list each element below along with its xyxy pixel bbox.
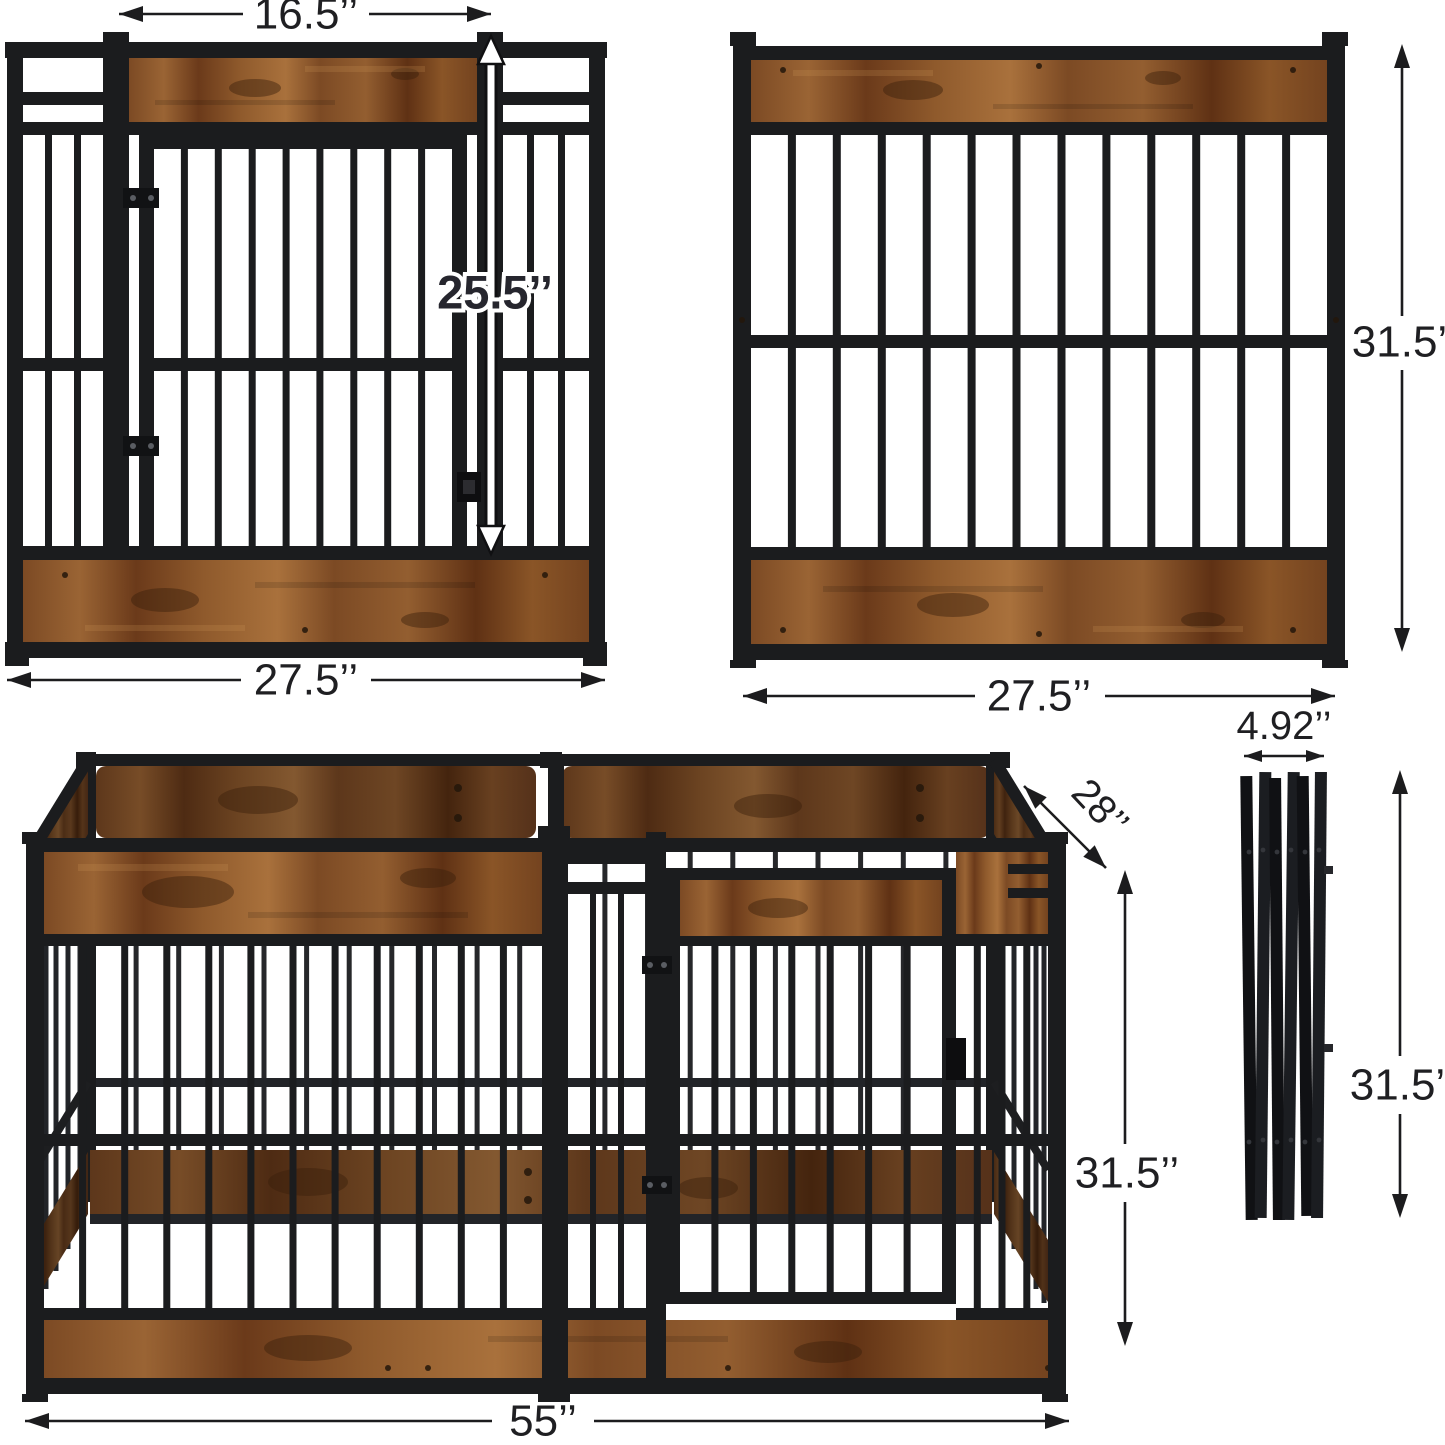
- top-wood-plank: [751, 60, 1327, 122]
- bottom-wood-plank: [23, 560, 589, 644]
- dimension-folded-height: 31.5’’: [1350, 770, 1445, 1218]
- bottom-rail: [23, 546, 589, 560]
- lower-bars: [788, 348, 1290, 547]
- folded-thickness-label: 4.92’’: [1237, 704, 1332, 748]
- foot: [1042, 1394, 1068, 1402]
- panel-right-post: [589, 42, 605, 646]
- bottom-rail: [751, 547, 1327, 560]
- front-center-post: [542, 832, 568, 1392]
- front-panel-width-label: 27.5’’: [254, 656, 358, 705]
- pen-height-label: 31.5’’: [1075, 1149, 1179, 1198]
- ladder-rung: [568, 882, 646, 894]
- bottom-frame-bar: [733, 644, 1345, 660]
- door-bars: [181, 149, 425, 560]
- left-mid-rail: [23, 358, 103, 371]
- right-rung: [503, 92, 589, 105]
- front-left-post: [26, 838, 44, 1392]
- front-left-upper-bars: [79, 946, 507, 1134]
- door-right-stile: [452, 135, 467, 575]
- door-hinge: [123, 188, 159, 208]
- panel-top-rail: [5, 42, 607, 58]
- bottom-wood-plank: [751, 560, 1327, 644]
- folded-panel-stack: [1240, 772, 1333, 1220]
- front-bottom-frame: [26, 1378, 1066, 1394]
- foot: [730, 660, 756, 668]
- diagram-canvas: 16.5’’: [0, 0, 1445, 1445]
- pen-door-upper-bars: [711, 946, 910, 1134]
- door-hinge: [123, 436, 159, 456]
- back-mid-rail: [96, 1078, 986, 1087]
- ladder-rung: [1008, 864, 1048, 874]
- dimension-pen-height: 31.5’’: [1075, 870, 1179, 1346]
- panel-right-post: [1327, 38, 1345, 648]
- front-panel-view: 16.5’’: [5, 0, 607, 705]
- foot: [5, 658, 29, 666]
- pen-door-right-stile: [942, 868, 956, 1304]
- pen-door-left-stile: [666, 868, 680, 1304]
- dimension-folded-thickness: 4.92’’: [1237, 704, 1332, 762]
- foot: [583, 658, 607, 666]
- product-dimension-diagram: 16.5’’: [0, 0, 1445, 1445]
- panel-left-post: [7, 42, 23, 646]
- front-door: [123, 135, 481, 575]
- pen-door-hinge: [642, 956, 672, 974]
- end-upper-bars: [974, 946, 1031, 1134]
- arrow-right-icon: [467, 6, 491, 22]
- door-top-rail: [139, 135, 467, 149]
- right-section-bars: [527, 135, 565, 560]
- back-panel-width-label: 27.5’’: [987, 672, 1091, 721]
- hinge-nub: [1324, 866, 1333, 874]
- door-width-label: 16.5’’: [254, 0, 358, 39]
- pen-door-hinge: [642, 1176, 672, 1194]
- folded-height-label: 31.5’’: [1350, 1061, 1445, 1110]
- right-rung: [503, 122, 589, 135]
- pen-door-bottom-rail: [666, 1292, 956, 1304]
- top-wood-plank: [129, 58, 477, 122]
- rail-under-wood: [751, 122, 1327, 135]
- back-panel-height-label: 31.5’’: [1352, 318, 1445, 367]
- door-height-label: 25.5’’: [437, 266, 553, 319]
- dimension-front-panel-width: 27.5’’: [7, 656, 605, 705]
- left-rung: [23, 122, 103, 135]
- left-rung: [23, 92, 103, 105]
- back-floor-rail: [90, 1214, 992, 1224]
- panel-top-rail: [751, 46, 1327, 60]
- folded-panels-view: 4.92’’ 31.5’’: [1237, 704, 1445, 1220]
- back-panel-view: 27.5’’ 31.5’’: [730, 32, 1445, 721]
- ladder-rung: [568, 852, 646, 864]
- back-kick-plank: [90, 1150, 992, 1216]
- left-section-bars: [45, 135, 81, 560]
- door-mid-rail: [154, 358, 452, 371]
- dimension-door-width: 16.5’’: [119, 0, 491, 39]
- right-mid-rail: [503, 358, 589, 371]
- pen-door-wood-header: [680, 880, 942, 936]
- pen-door-latch: [946, 1038, 966, 1080]
- mid-rail: [751, 335, 1327, 348]
- rail-under-wood: [129, 122, 477, 135]
- door-latch: [457, 472, 481, 502]
- ladder-rung: [1008, 888, 1048, 898]
- upper-bars: [788, 135, 1290, 335]
- dimension-pen-length: 55’’: [25, 1397, 1069, 1445]
- foot: [22, 1394, 48, 1402]
- pen-door-top-rail: [666, 868, 956, 880]
- pen-length-label: 55’’: [509, 1397, 577, 1445]
- front-right-panel: [568, 832, 1048, 1392]
- front-right-post: [1048, 838, 1066, 1392]
- panel-left-post: [733, 38, 751, 648]
- hinge-nub: [1324, 1044, 1333, 1052]
- dimension-back-panel-height: 31.5’’: [1352, 44, 1445, 652]
- arrow-left-icon: [119, 6, 143, 22]
- foot: [1322, 660, 1348, 668]
- assembled-playpen-view: 55’’ 28’’ 31.5’’: [22, 752, 1179, 1445]
